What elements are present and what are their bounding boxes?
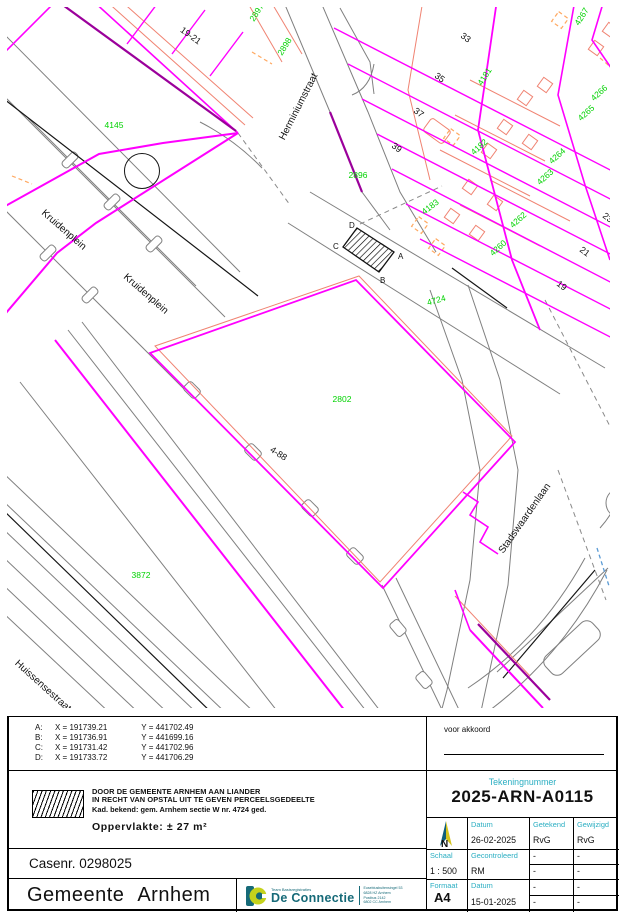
approval-cell: voor akkoord [426, 716, 618, 770]
y-coordinate: Y = 441702.96 [111, 743, 197, 753]
x-coordinate: X = 191739.21 [47, 723, 111, 733]
cadastral-map: Herminiumstraat Kruidenplein Kruidenplei… [7, 7, 618, 716]
gewijzigd-label: Gewijzigd [577, 821, 609, 829]
gecontroleerd-value: RM [471, 866, 485, 876]
empty-dash: - [577, 866, 580, 876]
drawing-number-cell: Tekeningnummer 2025-ARN-A0115 [426, 770, 618, 817]
point-id: C: [35, 743, 47, 753]
grid-line [467, 818, 468, 912]
area-value: Oppervlakte: ± 27 m² [92, 821, 207, 833]
parcel-number: 2802 [333, 394, 352, 404]
parcel-number: 3872 [132, 570, 151, 580]
corner-label-d: D [349, 221, 355, 230]
empty-dash: - [577, 882, 580, 892]
empty-dash: - [533, 897, 536, 907]
grid-line [573, 818, 574, 912]
approval-label: voor akkoord [444, 725, 490, 734]
logo-company-name: De Connectie [271, 892, 354, 905]
formaat-value: A4 [434, 890, 451, 905]
logo-block: Team Basisregistraties De Connectie Euse… [245, 881, 425, 910]
point-id: A: [35, 723, 47, 733]
cadastral-drawing-sheet: Herminiumstraat Kruidenplein Kruidenplei… [0, 0, 632, 920]
y-coordinate: Y = 441702.49 [111, 723, 197, 733]
formaat-label: Formaat [430, 882, 458, 890]
case-number: Casenr. 0298025 [29, 856, 132, 871]
y-coordinate: Y = 441699.16 [111, 733, 197, 743]
gewijzigd-value: RvG [577, 835, 595, 845]
datum1-value: 26-02-2025 [471, 835, 516, 845]
corner-label-b: B [380, 276, 385, 285]
datum2-label: Datum [471, 882, 493, 890]
point-id: B: [35, 733, 47, 743]
drawing-number-label: Tekeningnummer [427, 777, 618, 787]
gecontroleerd-label: Gecontroleerd [471, 852, 518, 860]
parcel-number: 2896 [349, 170, 368, 180]
empty-dash: - [533, 866, 536, 876]
schaal-value: 1 : 500 [430, 866, 457, 876]
x-coordinate: X = 191736.91 [47, 733, 111, 743]
coordinate-row: C: X = 191731.42 Y = 441702.96 [35, 743, 197, 753]
north-arrow-icon: N [435, 820, 457, 853]
schaal-label: Schaal [430, 852, 453, 860]
coordinate-list-cell: A: X = 191739.21 Y = 441702.49 B: X = 19… [7, 716, 426, 770]
grid-line [529, 895, 619, 896]
drawing-number: 2025-ARN-A0115 [427, 787, 618, 807]
empty-dash: - [533, 882, 536, 892]
grid-line [529, 864, 619, 865]
empty-dash: - [577, 851, 580, 861]
grid-line [427, 879, 619, 880]
coordinate-row: B: X = 191736.91 Y = 441699.16 [35, 733, 197, 743]
municipality-name: Gemeente Arnhem [27, 884, 210, 907]
datum1-label: Datum [471, 821, 493, 829]
y-coordinate: Y = 441706.29 [111, 753, 197, 763]
empty-dash: - [577, 897, 580, 907]
case-number-cell: Casenr. 0298025 [7, 848, 426, 878]
legend-line-2: IN RECHT VAN OPSTAL UIT TE GEVEN PERCEEL… [92, 796, 412, 804]
parcel-number: 4145 [105, 120, 124, 130]
legend-cell: DOOR DE GEMEENTE ARNHEM AAN LIANDER IN R… [7, 770, 426, 848]
coordinate-row: D: X = 191733.72 Y = 441706.29 [35, 753, 197, 763]
getekend-label: Getekend [533, 821, 565, 829]
municipality-row: Gemeente Arnhem Team Basisregistraties D… [7, 878, 426, 911]
north-label: N [441, 839, 448, 848]
corner-label-a: A [398, 252, 404, 261]
hatch-legend-swatch [32, 790, 84, 818]
x-coordinate: X = 191731.42 [47, 743, 111, 753]
x-coordinate: X = 191733.72 [47, 753, 111, 763]
de-connectie-logo-icon [245, 884, 267, 908]
getekend-value: RvG [533, 835, 551, 845]
empty-dash: - [533, 851, 536, 861]
datum2-value: 15-01-2025 [471, 897, 516, 907]
point-id: D: [35, 753, 47, 763]
revision-table: N Getekend RvG Gewijzigd RvG Datum 26-02… [426, 817, 618, 911]
legend-kadaster-line: Kad. bekend: gem. Arnhem sectie W nr. 47… [92, 805, 412, 814]
address-line: 6802 CC Arnhem [363, 900, 402, 905]
grid-line [529, 818, 530, 912]
coordinate-table: A: X = 191739.21 Y = 441702.49 B: X = 19… [35, 723, 197, 763]
signature-line [444, 754, 604, 755]
corner-label-c: C [333, 242, 339, 251]
coordinate-row: A: X = 191739.21 Y = 441702.49 [35, 723, 197, 733]
cell-divider [236, 879, 237, 912]
logo-address: Eusebiusbuitensingel 53 6828 HZ Arnhem P… [359, 886, 402, 904]
